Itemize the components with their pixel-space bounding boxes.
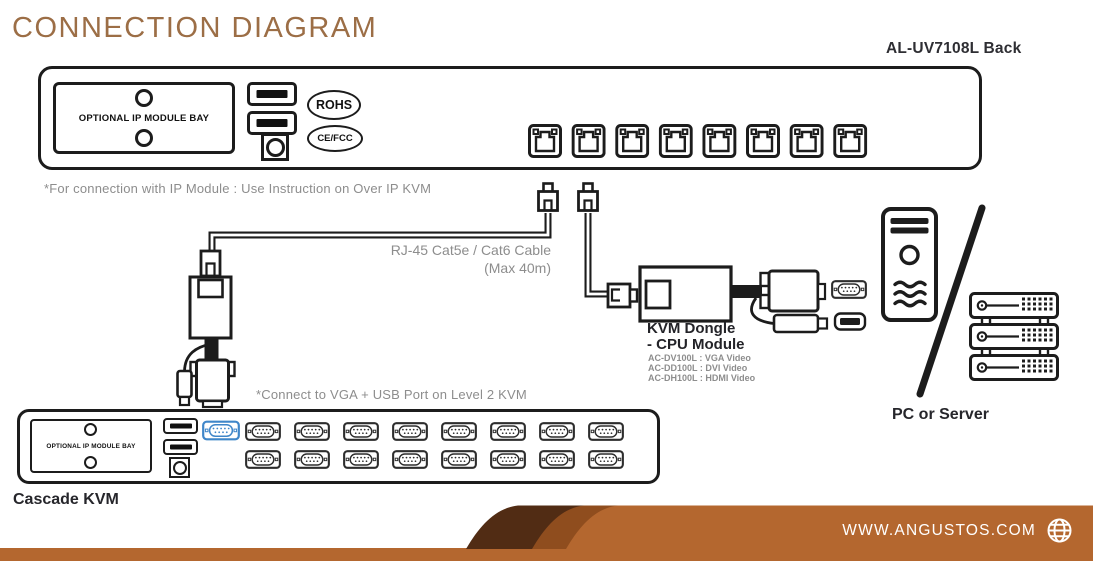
usb-connector-icon	[774, 315, 827, 332]
screw-hole-icon	[84, 423, 97, 436]
usb-pin-icon	[257, 119, 288, 127]
power-jack-pin-icon	[173, 461, 187, 475]
server-unit-icon	[971, 325, 1058, 349]
pc-server-label: PC or Server	[892, 406, 989, 424]
server-rack-icon	[971, 294, 1058, 380]
kvm-dongle-title: KVM Dongle - CPU Module	[647, 321, 745, 353]
usb-port-icon	[163, 418, 198, 434]
cat5-cable-right	[588, 213, 612, 294]
cable	[205, 338, 219, 362]
rj45-plug-icon	[579, 184, 598, 211]
dongle-model: AC-DD100L : DVI Video	[648, 363, 755, 373]
server-unit-icon	[971, 294, 1058, 318]
cascade-connect-note: *Connect to VGA + USB Port on Level 2 KV…	[256, 387, 527, 402]
cable-label-line1: RJ-45 Cat5e / Cat6 Cable	[391, 241, 551, 259]
model-label: AL-UV7108L Back	[886, 40, 1021, 58]
ip-module-bay-label: OPTIONAL IP MODULE BAY	[79, 113, 209, 124]
rj45-plug-icon	[539, 184, 558, 211]
vga-connector-icon	[761, 271, 826, 311]
usb-pin-icon	[170, 424, 192, 429]
rohs-badge: ROHS	[307, 90, 361, 120]
usb-cable	[185, 344, 212, 371]
ip-module-bay: OPTIONAL IP MODULE BAY	[30, 419, 152, 473]
footer-website: WWW.ANGUSTOS.COM	[842, 517, 1073, 544]
rj45-plug-icon	[201, 251, 220, 276]
usb-cable	[752, 298, 774, 324]
vga-port-icon	[832, 281, 866, 298]
vga-connector-icon	[191, 360, 235, 407]
pc-tower-icon	[883, 209, 936, 320]
cefcc-badge: CE/FCC	[307, 125, 363, 152]
ip-module-note: *For connection with IP Module : Use Ins…	[44, 181, 431, 196]
cable-label-line2: (Max 40m)	[391, 259, 551, 277]
cascade-dongle-graphic	[178, 251, 235, 407]
dongle-model: AC-DH100L : HDMI Video	[648, 373, 755, 383]
usb-pin-icon	[257, 90, 288, 98]
dongle-model: AC-DV100L : VGA Video	[648, 353, 755, 363]
power-jack-icon	[169, 457, 190, 478]
globe-icon	[1046, 517, 1073, 544]
usb-port-icon	[247, 82, 297, 106]
slash-divider	[920, 208, 982, 394]
usb-pin-icon	[170, 445, 192, 450]
power-jack-icon	[261, 133, 289, 161]
screw-hole-icon	[135, 89, 153, 107]
footer-website-text: WWW.ANGUSTOS.COM	[842, 522, 1036, 540]
kvm-dongle-title-line2: - CPU Module	[647, 337, 745, 353]
cable	[731, 285, 762, 298]
connection-diagram-page: CONNECTION DIAGRAM AL-UV7108L Back OPTIO…	[0, 0, 1093, 561]
server-unit-icon	[971, 356, 1058, 380]
screw-hole-icon	[135, 129, 153, 147]
screw-hole-icon	[84, 456, 97, 469]
dongle-box	[640, 267, 731, 321]
usb-port-icon	[247, 111, 297, 135]
usb-port-icon	[163, 439, 198, 455]
kvm-dongle-title-line1: KVM Dongle	[647, 321, 745, 337]
ip-module-bay: OPTIONAL IP MODULE BAY	[53, 82, 235, 154]
dongle-model-list: AC-DV100L : VGA Video AC-DD100L : DVI Vi…	[648, 353, 755, 383]
kvm-back-panel: OPTIONAL IP MODULE BAY ROHS CE/FCC	[38, 66, 982, 170]
page-title: CONNECTION DIAGRAM	[12, 12, 377, 45]
ip-module-bay-label: OPTIONAL IP MODULE BAY	[46, 443, 135, 450]
footer-strip	[0, 548, 1093, 561]
dongle-box	[190, 277, 231, 338]
cascade-kvm-label: Cascade KVM	[13, 491, 119, 509]
usb-port-icon	[835, 314, 865, 330]
cascade-kvm-panel: OPTIONAL IP MODULE BAY	[17, 409, 660, 484]
usb-connector-icon	[178, 371, 192, 405]
power-jack-pin-icon	[266, 138, 285, 157]
cable-label: RJ-45 Cat5e / Cat6 Cable (Max 40m)	[391, 241, 551, 277]
rj45-plug-icon	[608, 284, 637, 307]
